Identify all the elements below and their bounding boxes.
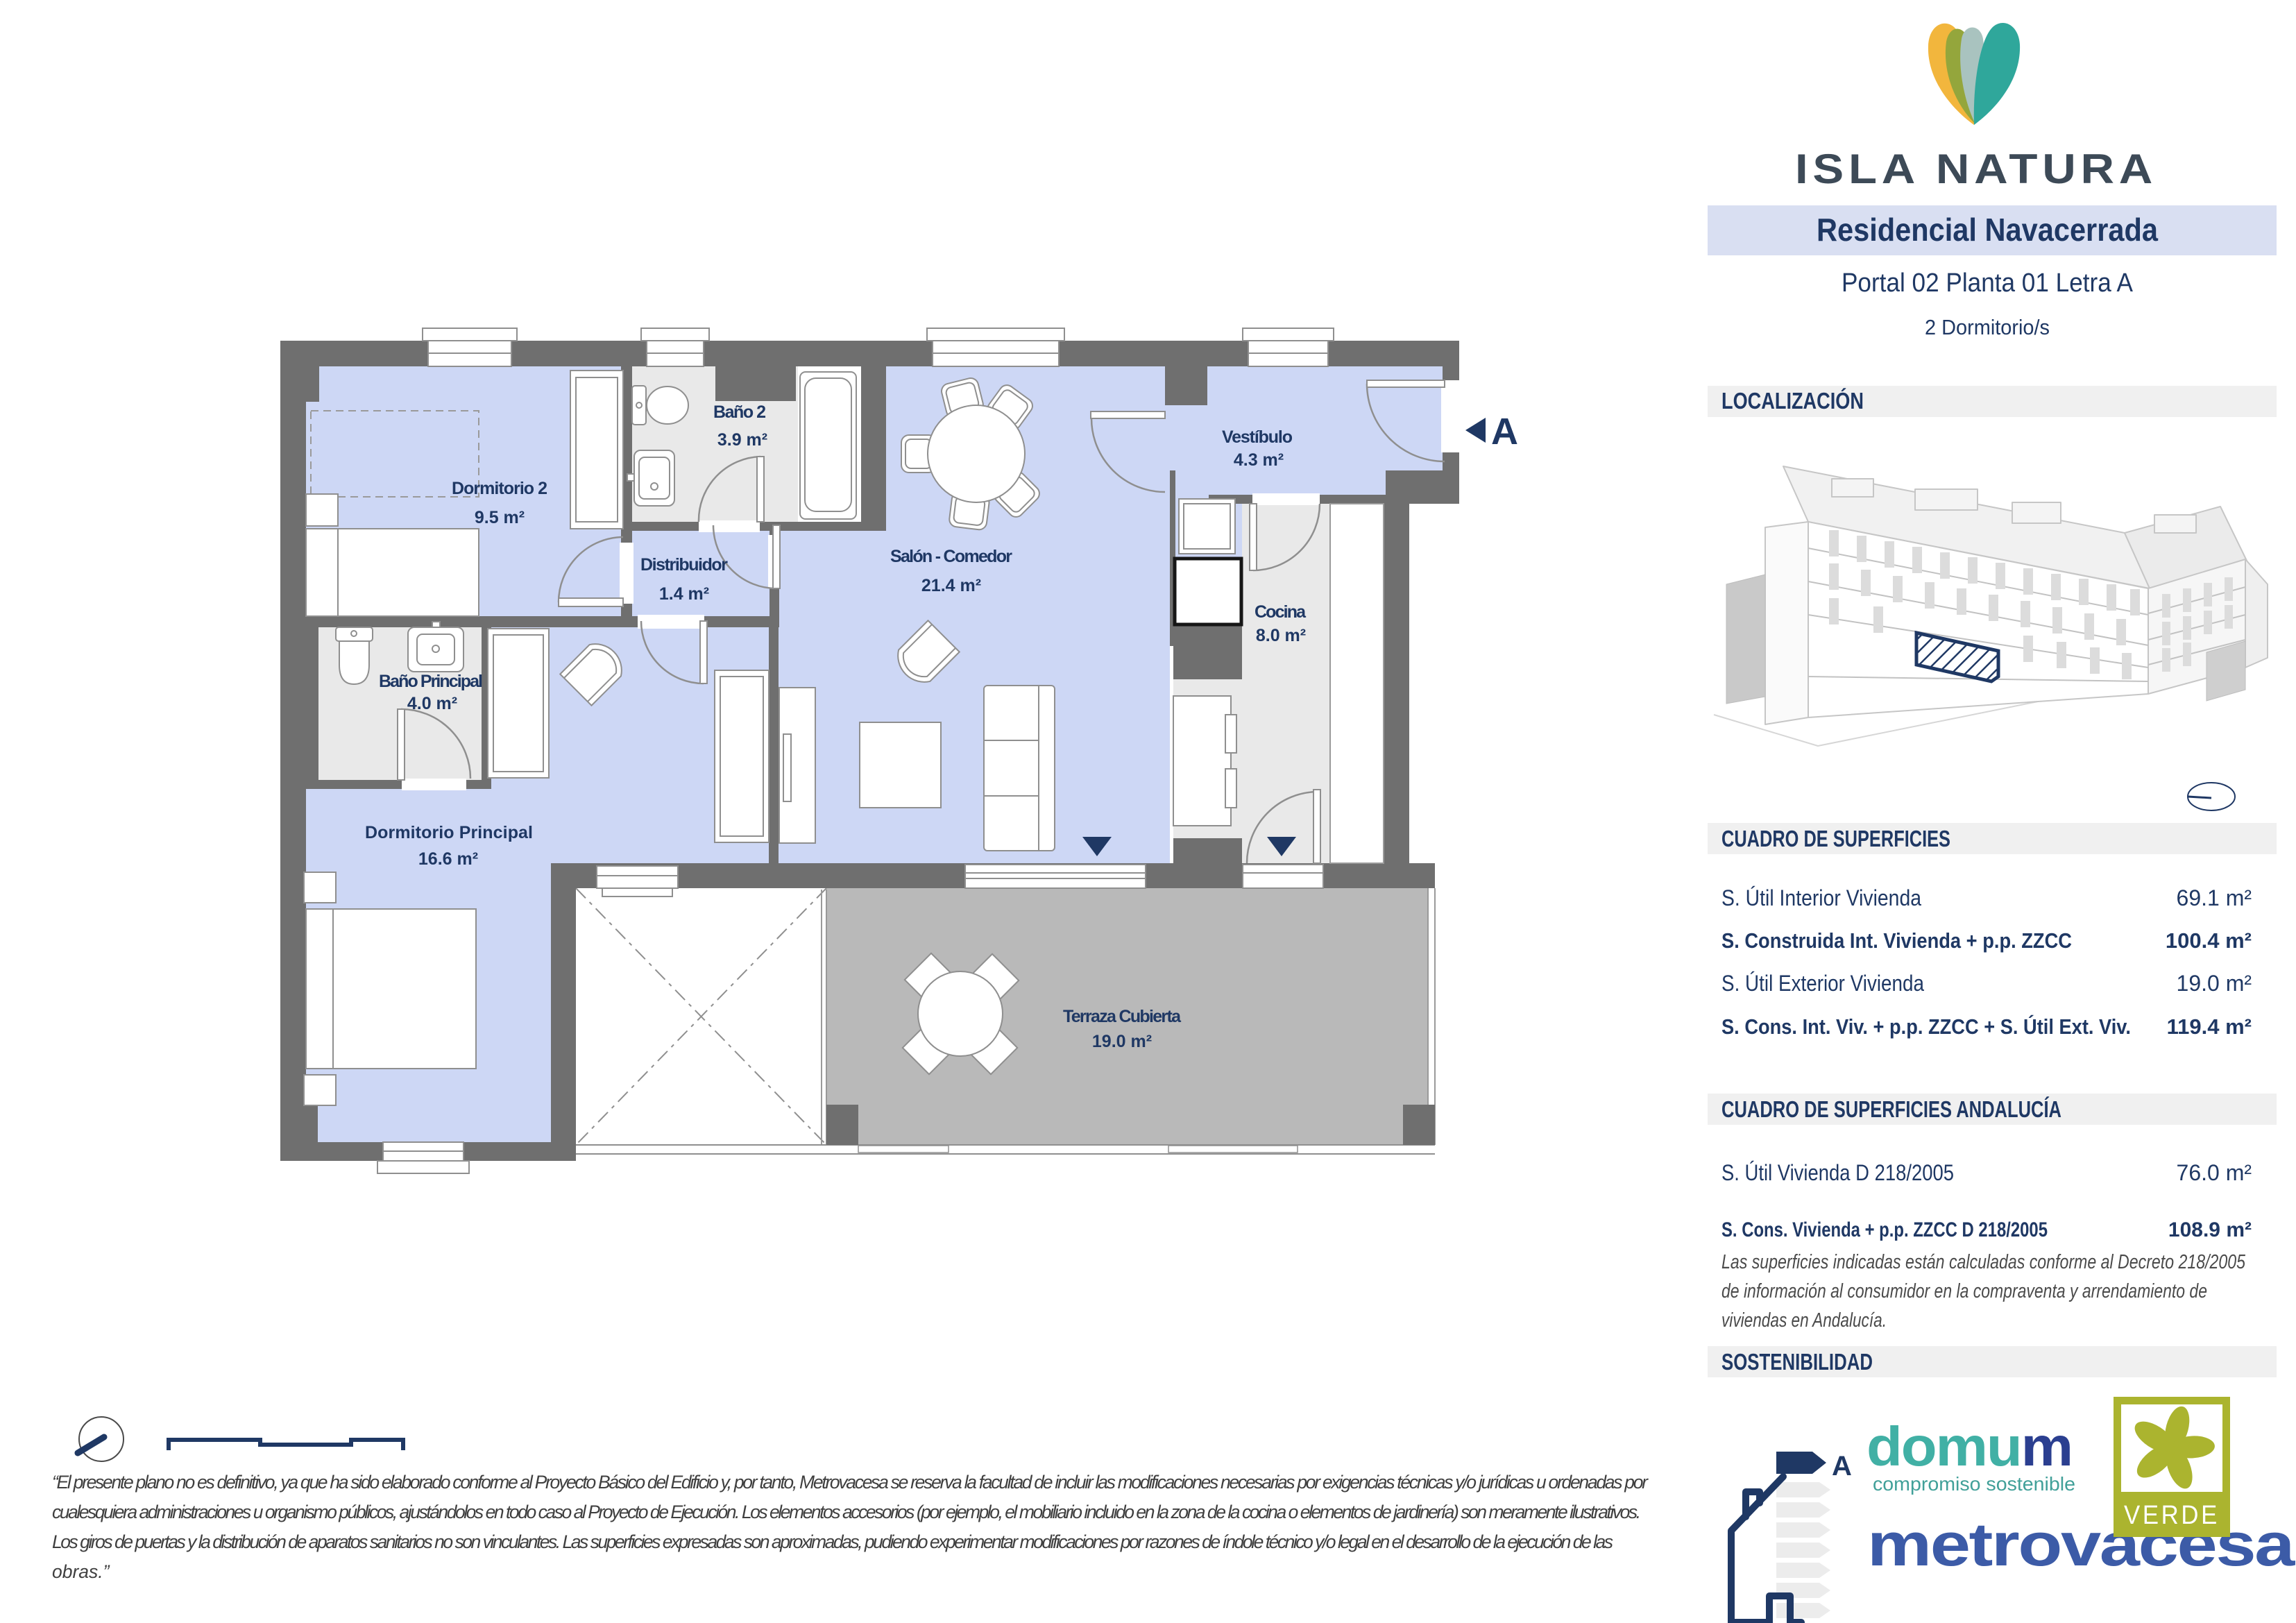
svg-text:domum: domum [1866, 1416, 2072, 1477]
svg-text:119.4 m²: 119.4 m² [2167, 1014, 2252, 1039]
svg-text:1.4 m²: 1.4 m² [659, 584, 709, 604]
svg-text:Cocina: Cocina [1255, 602, 1307, 622]
svg-text:Distribuidor: Distribuidor [640, 555, 728, 575]
svg-text:Los giros de puertas y la dist: Los giros de puertas y la distribución d… [52, 1531, 1613, 1552]
svg-text:CUADRO DE SUPERFICIES ANDALUCÍ: CUADRO DE SUPERFICIES ANDALUCÍA [1721, 1096, 2061, 1122]
svg-text:“El presente plano no es defin: “El presente plano no es definitivo, ya … [52, 1472, 1649, 1493]
svg-text:S. Útil Exterior Vivienda: S. Útil Exterior Vivienda [1721, 971, 1924, 996]
svg-text:S. Útil Interior Vivienda: S. Útil Interior Vivienda [1721, 885, 1921, 910]
svg-text:compromiso sostenible: compromiso sostenible [1873, 1473, 2075, 1495]
svg-text:8.0 m²: 8.0 m² [1256, 626, 1306, 645]
svg-text:Baño 2: Baño 2 [713, 402, 766, 422]
svg-text:cualesquiera administraciones: cualesquiera administraciones u organism… [52, 1502, 1641, 1522]
svg-text:ISLA NATURA: ISLA NATURA [1795, 146, 2157, 192]
svg-text:3.9 m²: 3.9 m² [717, 430, 767, 450]
svg-text:S. Útil Vivienda D 218/2005: S. Útil Vivienda D 218/2005 [1721, 1160, 1954, 1185]
svg-text:69.1 m²: 69.1 m² [2177, 885, 2252, 910]
svg-text:SOSTENIBILIDAD: SOSTENIBILIDAD [1721, 1349, 1873, 1375]
svg-text:Portal 02 Planta 01 Letra A: Portal 02 Planta 01 Letra A [1842, 269, 2134, 298]
svg-text:viviendas en Andalucía.: viviendas en Andalucía. [1721, 1309, 1887, 1332]
svg-text:CUADRO DE SUPERFICIES: CUADRO DE SUPERFICIES [1721, 826, 1950, 851]
svg-text:16.6 m²: 16.6 m² [418, 849, 478, 869]
svg-text:Terraza Cubierta: Terraza Cubierta [1063, 1007, 1182, 1026]
svg-text:19.0 m²: 19.0 m² [1092, 1032, 1152, 1051]
svg-text:Salón - Comedor: Salón - Comedor [890, 547, 1012, 566]
svg-text:S. Cons. Vivienda + p.p. ZZCC: S. Cons. Vivienda + p.p. ZZCC D 218/2005 [1721, 1218, 2048, 1241]
svg-text:9.5 m²: 9.5 m² [475, 508, 525, 527]
svg-text:Dormitorio Principal: Dormitorio Principal [365, 823, 533, 842]
svg-text:A: A [1832, 1451, 1852, 1481]
svg-text:Baño Principal: Baño Principal [379, 672, 483, 691]
svg-text:2 Dormitorio/s: 2 Dormitorio/s [1925, 315, 2050, 339]
svg-text:VERDE: VERDE [2124, 1501, 2220, 1530]
svg-text:4.0 m²: 4.0 m² [407, 694, 457, 713]
svg-text:S. Cons. Int. Viv. + p.p. ZZCC: S. Cons. Int. Viv. + p.p. ZZCC + S. Útil… [1721, 1014, 2131, 1039]
svg-text:Vestíbulo: Vestíbulo [1222, 427, 1293, 447]
svg-text:de información al consumidor e: de información al consumidor en la compr… [1721, 1280, 2207, 1302]
svg-text:19.0 m²: 19.0 m² [2177, 971, 2252, 996]
svg-text:obras.”: obras.” [52, 1561, 110, 1582]
svg-text:100.4 m²: 100.4 m² [2166, 928, 2252, 953]
svg-text:A: A [1491, 411, 1518, 452]
svg-text:Dormitorio 2: Dormitorio 2 [452, 479, 547, 498]
svg-text:metrovacesa: metrovacesa [1867, 1510, 2296, 1579]
svg-text:4.3 m²: 4.3 m² [1234, 450, 1284, 470]
svg-text:S. Construida Int. Vivienda +: S. Construida Int. Vivienda + p.p. ZZCC [1721, 928, 2072, 953]
svg-text:Las superficies indicadas está: Las superficies indicadas están calculad… [1721, 1251, 2246, 1273]
svg-text:Residencial Navacerrada: Residencial Navacerrada [1817, 212, 2158, 248]
svg-text:108.9 m²: 108.9 m² [2168, 1218, 2252, 1241]
svg-text:76.0 m²: 76.0 m² [2177, 1160, 2252, 1185]
svg-text:21.4 m²: 21.4 m² [921, 576, 981, 595]
svg-text:LOCALIZACIÓN: LOCALIZACIÓN [1721, 388, 1864, 414]
